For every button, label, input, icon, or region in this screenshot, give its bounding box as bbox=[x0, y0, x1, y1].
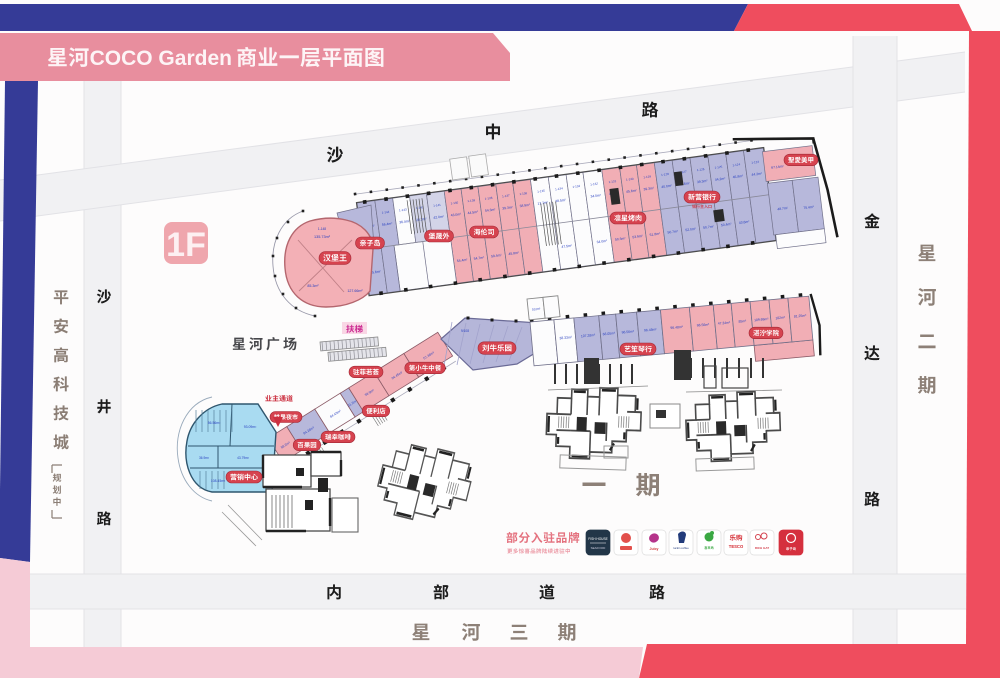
svg-text:43.79m²: 43.79m² bbox=[237, 456, 249, 460]
svg-text:luckin coffee: luckin coffee bbox=[673, 546, 689, 550]
svg-text:108.45m²: 108.45m² bbox=[211, 479, 226, 483]
svg-text:135.73m²: 135.73m² bbox=[314, 235, 331, 239]
svg-text:1-148: 1-148 bbox=[318, 227, 326, 231]
svg-text:FISH HOUSE: FISH HOUSE bbox=[588, 537, 607, 541]
svg-text:56.56m²: 56.56m² bbox=[208, 421, 221, 425]
svg-text:SEAFOOD: SEAFOOD bbox=[591, 546, 607, 550]
svg-text:TESCO: TESCO bbox=[729, 544, 744, 549]
svg-text:36.9m²: 36.9m² bbox=[199, 456, 209, 460]
svg-text:COCO Garden: COCO Garden bbox=[90, 47, 232, 70]
svg-text:9/108: 9/108 bbox=[461, 329, 469, 333]
svg-text:RICH GAT: RICH GAT bbox=[755, 546, 769, 550]
svg-text:93.09m²: 93.09m² bbox=[244, 425, 257, 429]
svg-text:Juicy: Juicy bbox=[650, 547, 659, 551]
svg-text:1F: 1F bbox=[166, 226, 206, 264]
svg-text:85.3m²: 85.3m² bbox=[307, 284, 319, 288]
svg-text:85m²: 85m² bbox=[738, 319, 747, 324]
svg-text:127.66m²: 127.66m² bbox=[347, 289, 363, 293]
